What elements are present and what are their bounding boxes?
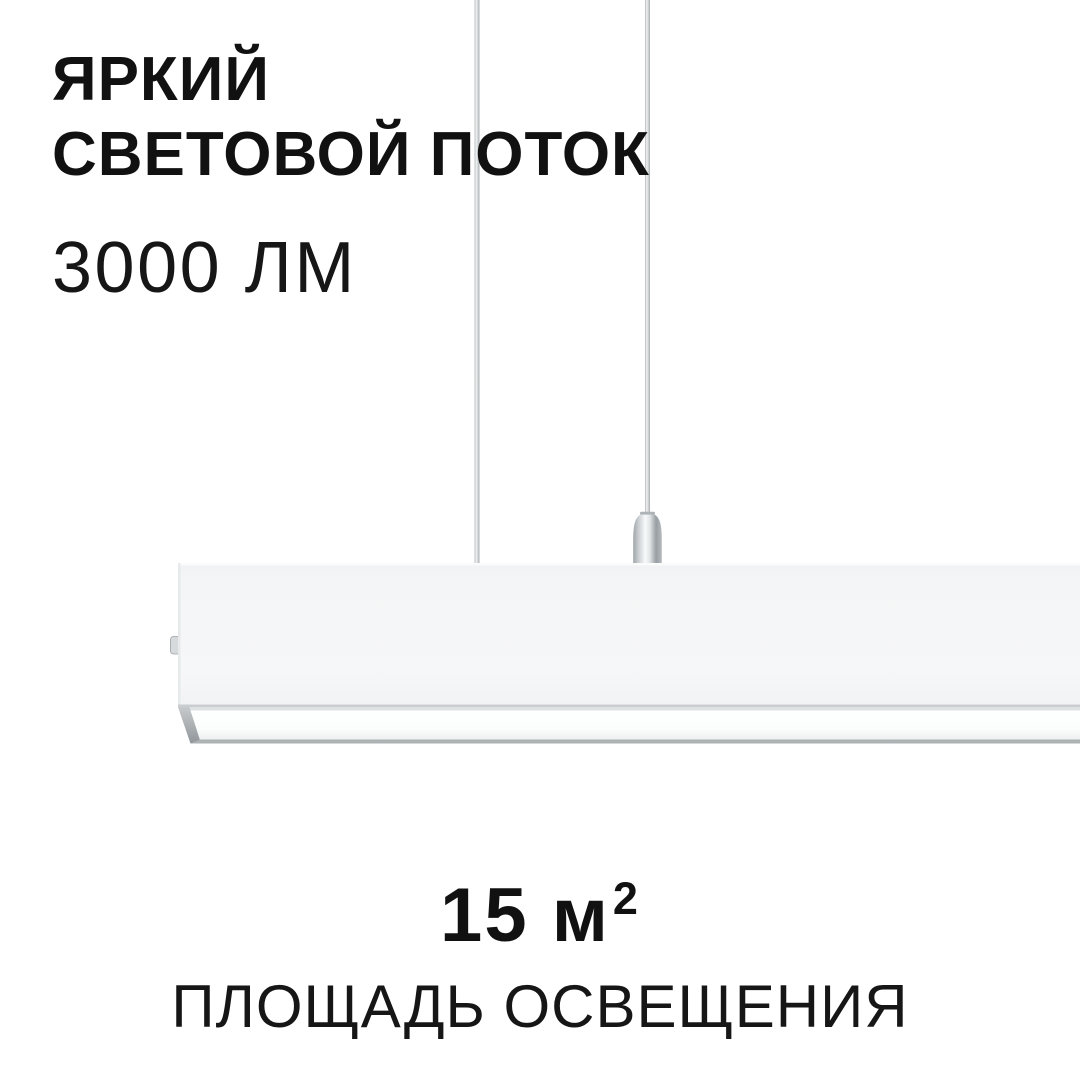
- cable-gripper: [633, 513, 662, 563]
- coverage-area-value: 15 м2: [0, 878, 1080, 964]
- cable-gripper-top-ring: [640, 512, 655, 515]
- headline: ЯРКИЙ СВЕТОВОЙ ПОТОК: [52, 42, 650, 192]
- lamp-near-rail: [178, 705, 1080, 708]
- coverage-area-block: 15 м2 ПЛОЩАДЬ ОСВЕЩЕНИЯ: [0, 878, 1080, 1037]
- coverage-area-superscript: 2: [613, 873, 640, 924]
- product-infographic-card: ЯРКИЙ СВЕТОВОЙ ПОТОК 3000 ЛМ 15 м2 ПЛОЩА…: [0, 0, 1080, 1080]
- headline-line2: СВЕТОВОЙ ПОТОК: [52, 117, 650, 192]
- coverage-area-label: ПЛОЩАДЬ ОСВЕЩЕНИЯ: [0, 977, 1080, 1037]
- headline-line1: ЯРКИЙ: [52, 42, 650, 117]
- lamp-body-left-edge: [178, 563, 181, 706]
- lamp-body-top-highlight: [178, 563, 1080, 566]
- coverage-area-number: 15 м: [440, 873, 610, 958]
- luminous-flux-value: 3000 ЛМ: [52, 232, 357, 304]
- lamp-far-rail: [191, 740, 1080, 744]
- lamp-body-front: [178, 563, 1080, 706]
- lamp-diffuser: [191, 711, 1080, 740]
